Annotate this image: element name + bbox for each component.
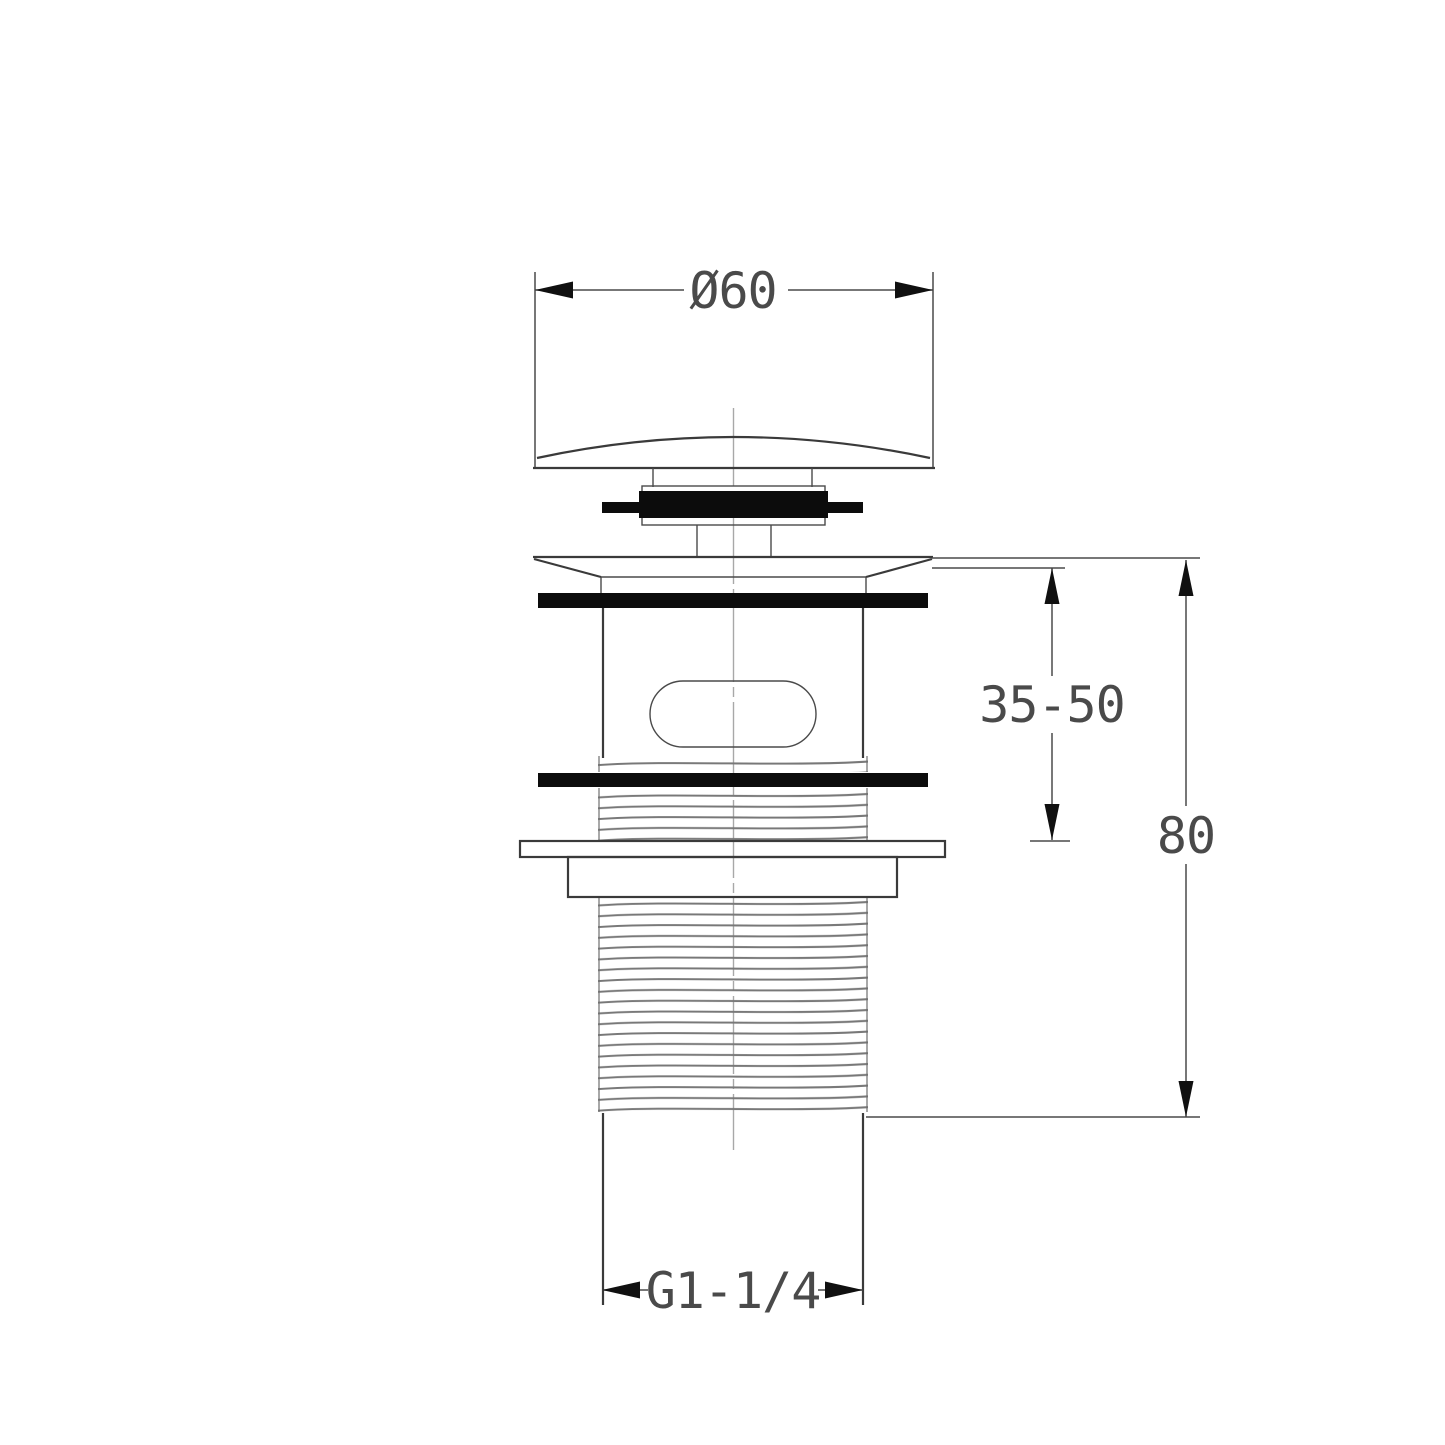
backnut-body — [568, 857, 897, 897]
clamp-range-label: 35-50 — [979, 676, 1125, 734]
dimension-clamp-range: 35-50 — [932, 558, 1200, 841]
threaded-sections — [598, 756, 868, 1112]
actuator-mechanism — [602, 468, 863, 557]
gasket-upper — [538, 593, 928, 608]
dimension-thread-spec: G1-1/4 — [602, 1262, 863, 1320]
backnut-plate — [520, 841, 945, 857]
flange-underside-right — [866, 559, 932, 577]
cap-diameter-label: Ø60 — [689, 262, 776, 320]
actuator-cross-bar — [602, 502, 863, 513]
dimension-body-length: 80 — [866, 560, 1215, 1117]
arrow-left-icon — [535, 282, 573, 299]
flange-underside-left — [534, 559, 601, 577]
gasket-lower — [538, 773, 928, 787]
arrow-up-icon — [1179, 560, 1194, 596]
thread-zone-middle — [598, 788, 868, 840]
backnut — [520, 841, 945, 897]
thread-zone-upper — [598, 756, 868, 772]
thread-spec-label: G1-1/4 — [646, 1262, 821, 1320]
arrow-down-icon — [1179, 1081, 1194, 1117]
arrow-right-icon — [825, 1282, 863, 1299]
body-length-label: 80 — [1157, 807, 1215, 865]
arrow-left-icon — [602, 1282, 640, 1299]
thread-zone-long — [598, 898, 868, 1112]
arrow-right-icon — [895, 282, 933, 299]
pop-up-waste-drawing: Ø60 — [0, 0, 1445, 1445]
arrow-up-icon — [1045, 568, 1060, 604]
technical-drawing-page: Ø60 — [0, 0, 1445, 1445]
arrow-down-icon — [1045, 804, 1060, 840]
